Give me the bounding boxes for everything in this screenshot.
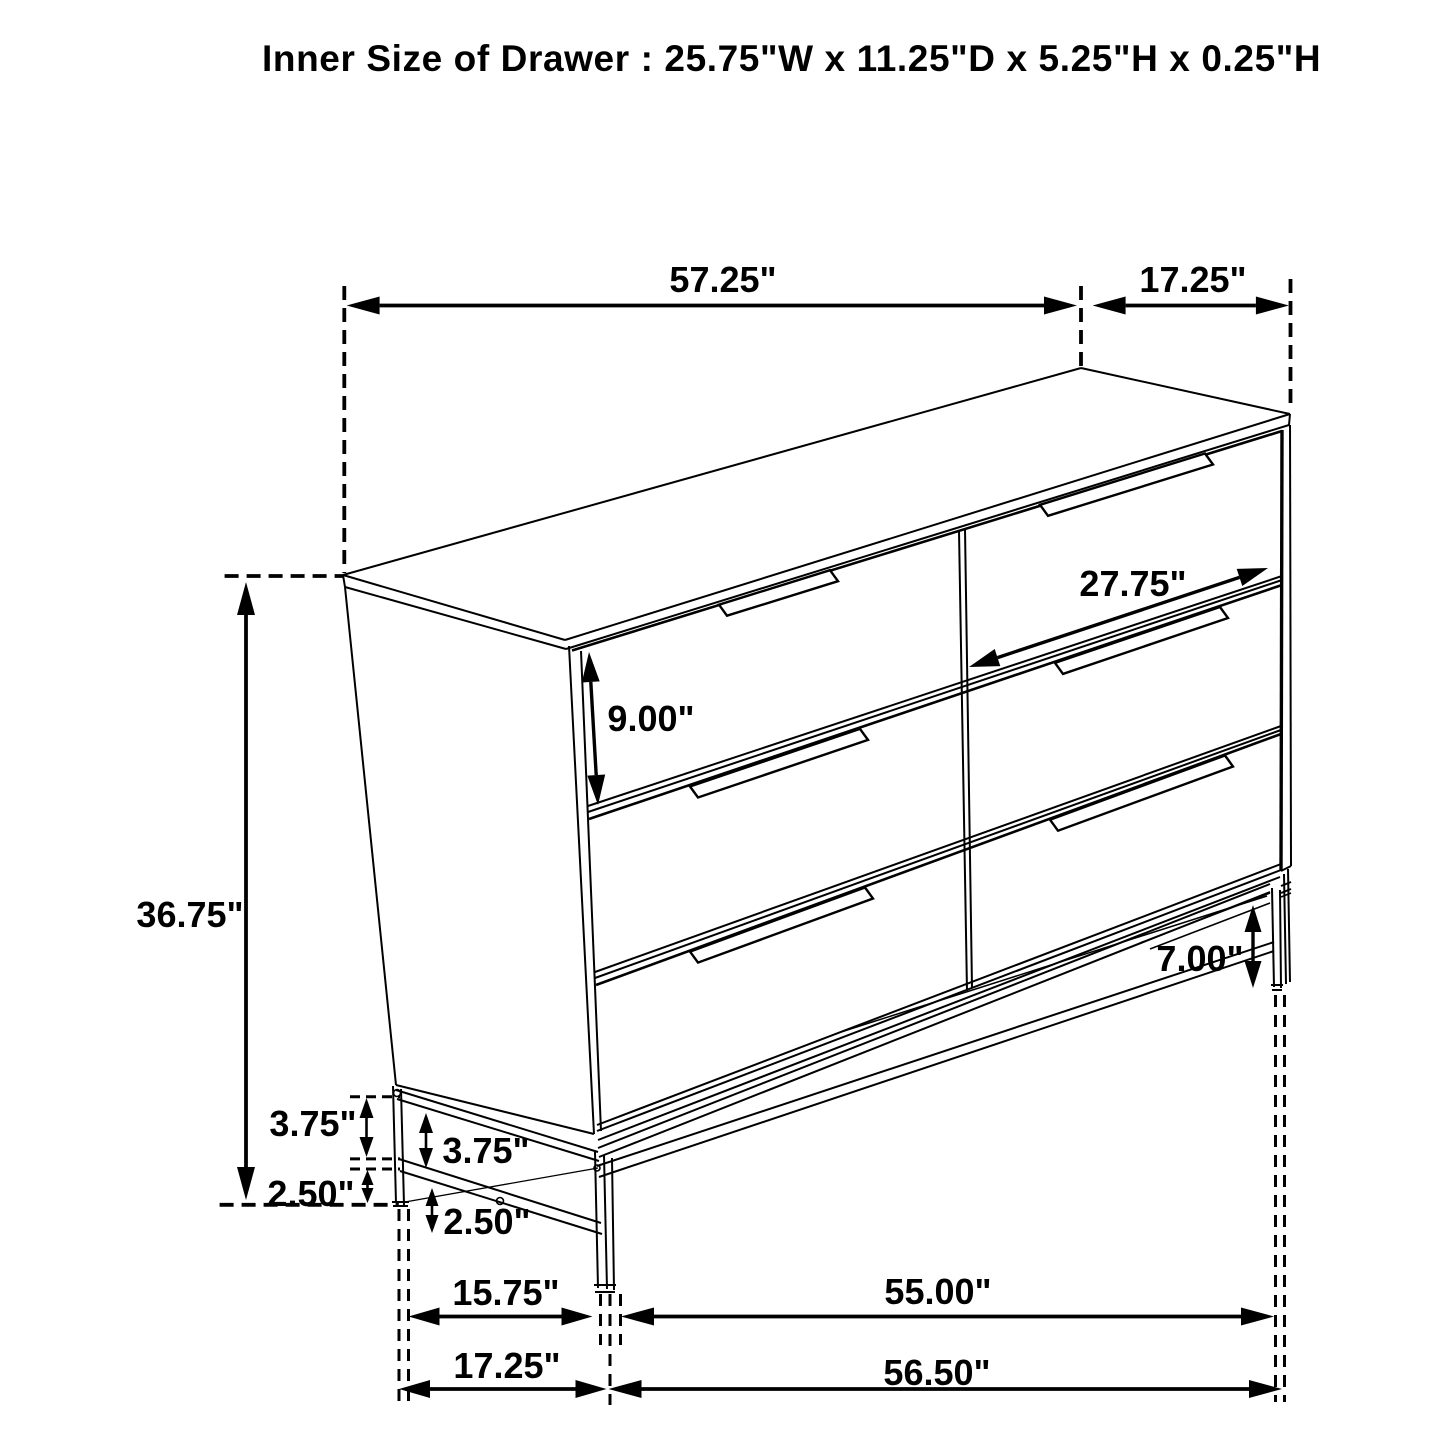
svg-text:36.75": 36.75": [136, 894, 243, 935]
svg-text:2.50": 2.50": [443, 1201, 530, 1242]
svg-text:3.75": 3.75": [442, 1130, 529, 1171]
svg-text:7.00": 7.00": [1156, 938, 1243, 979]
svg-text:17.25": 17.25": [1139, 259, 1246, 300]
svg-text:Inner Size of Drawer : 25.75"W: Inner Size of Drawer : 25.75"W x 11.25"D…: [262, 38, 1321, 79]
svg-text:2.50": 2.50": [267, 1173, 354, 1214]
svg-text:27.75": 27.75": [1079, 563, 1186, 604]
svg-text:17.25": 17.25": [453, 1345, 560, 1386]
svg-text:9.00": 9.00": [607, 698, 694, 739]
svg-text:57.25": 57.25": [669, 259, 776, 300]
svg-text:56.50": 56.50": [883, 1352, 990, 1393]
svg-text:15.75": 15.75": [452, 1272, 559, 1313]
svg-text:55.00": 55.00": [884, 1271, 991, 1312]
svg-text:3.75": 3.75": [269, 1103, 356, 1144]
